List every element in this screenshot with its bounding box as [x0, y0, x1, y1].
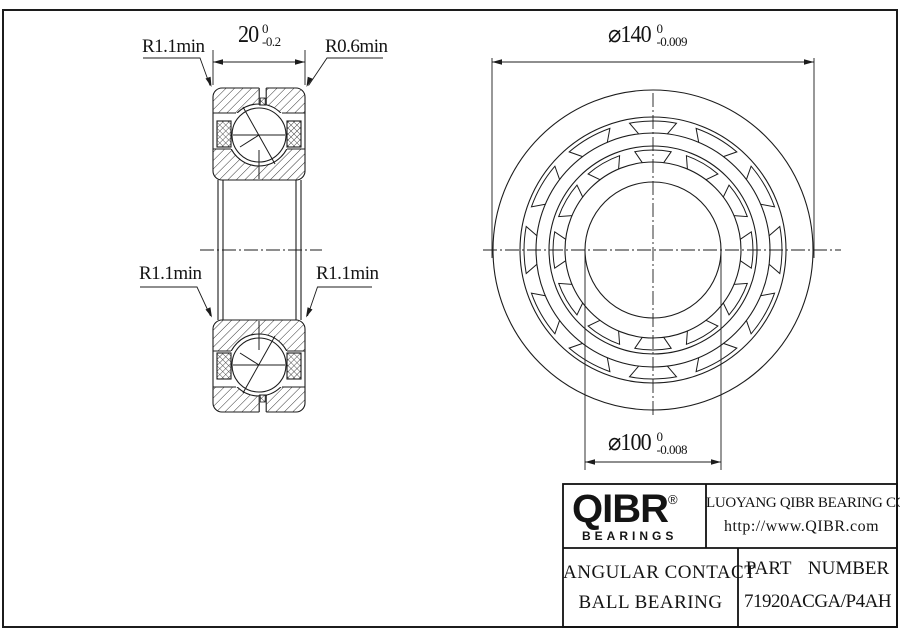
logo-subtext: BEARINGS — [582, 529, 678, 543]
cage-section-right — [287, 121, 301, 147]
company-name: LUOYANG QIBR BEARING CO. , LTD — [706, 495, 897, 512]
part-number-value: 71920ACGA/P4AH — [738, 591, 897, 613]
radius-label-top-right: R0.6min — [325, 36, 387, 58]
width-dimension-lines — [213, 50, 305, 85]
company-website: http://www.QIBR.com — [706, 518, 897, 536]
product-name-line1: ANGULAR CONTACT — [563, 562, 738, 584]
bore-dia-tol-lower: -0.008 — [656, 443, 687, 456]
logo-text: QIBR — [572, 487, 668, 531]
outer-dia-value: ⌀140 — [608, 22, 651, 48]
width-dimension-text: 20 0 -0.2 — [238, 22, 281, 48]
drawing-canvas — [0, 0, 900, 636]
radius-label-top-left: R1.1min — [142, 36, 204, 58]
registered-mark-icon: ® — [668, 492, 678, 507]
outer-dia-tol-lower: -0.009 — [656, 35, 687, 48]
part-number-label: PART NUMBER — [738, 558, 897, 580]
engineering-drawing-page: R1.1min 20 0 -0.2 R0.6min R1.1min R1.1mi… — [0, 0, 900, 636]
product-name-line2: BALL BEARING — [563, 592, 738, 614]
bore-diameter-dimension-text: ⌀100 0 -0.008 — [608, 430, 687, 456]
radius-label-mid-left: R1.1min — [139, 263, 201, 285]
outer-diameter-dimension-text: ⌀140 0 -0.009 — [608, 22, 687, 48]
width-tol-lower: -0.2 — [262, 35, 281, 48]
company-logo: QIBR® BEARINGS — [572, 490, 678, 543]
bearing-cross-section-view — [140, 50, 383, 414]
radius-label-mid-right: R1.1min — [316, 263, 378, 285]
width-value: 20 — [238, 22, 258, 48]
lower-ring-section — [213, 320, 305, 414]
bearing-front-view — [483, 58, 841, 470]
cage-section-left — [217, 121, 231, 147]
bore-dia-value: ⌀100 — [608, 430, 651, 456]
upper-ring-section — [213, 87, 305, 181]
